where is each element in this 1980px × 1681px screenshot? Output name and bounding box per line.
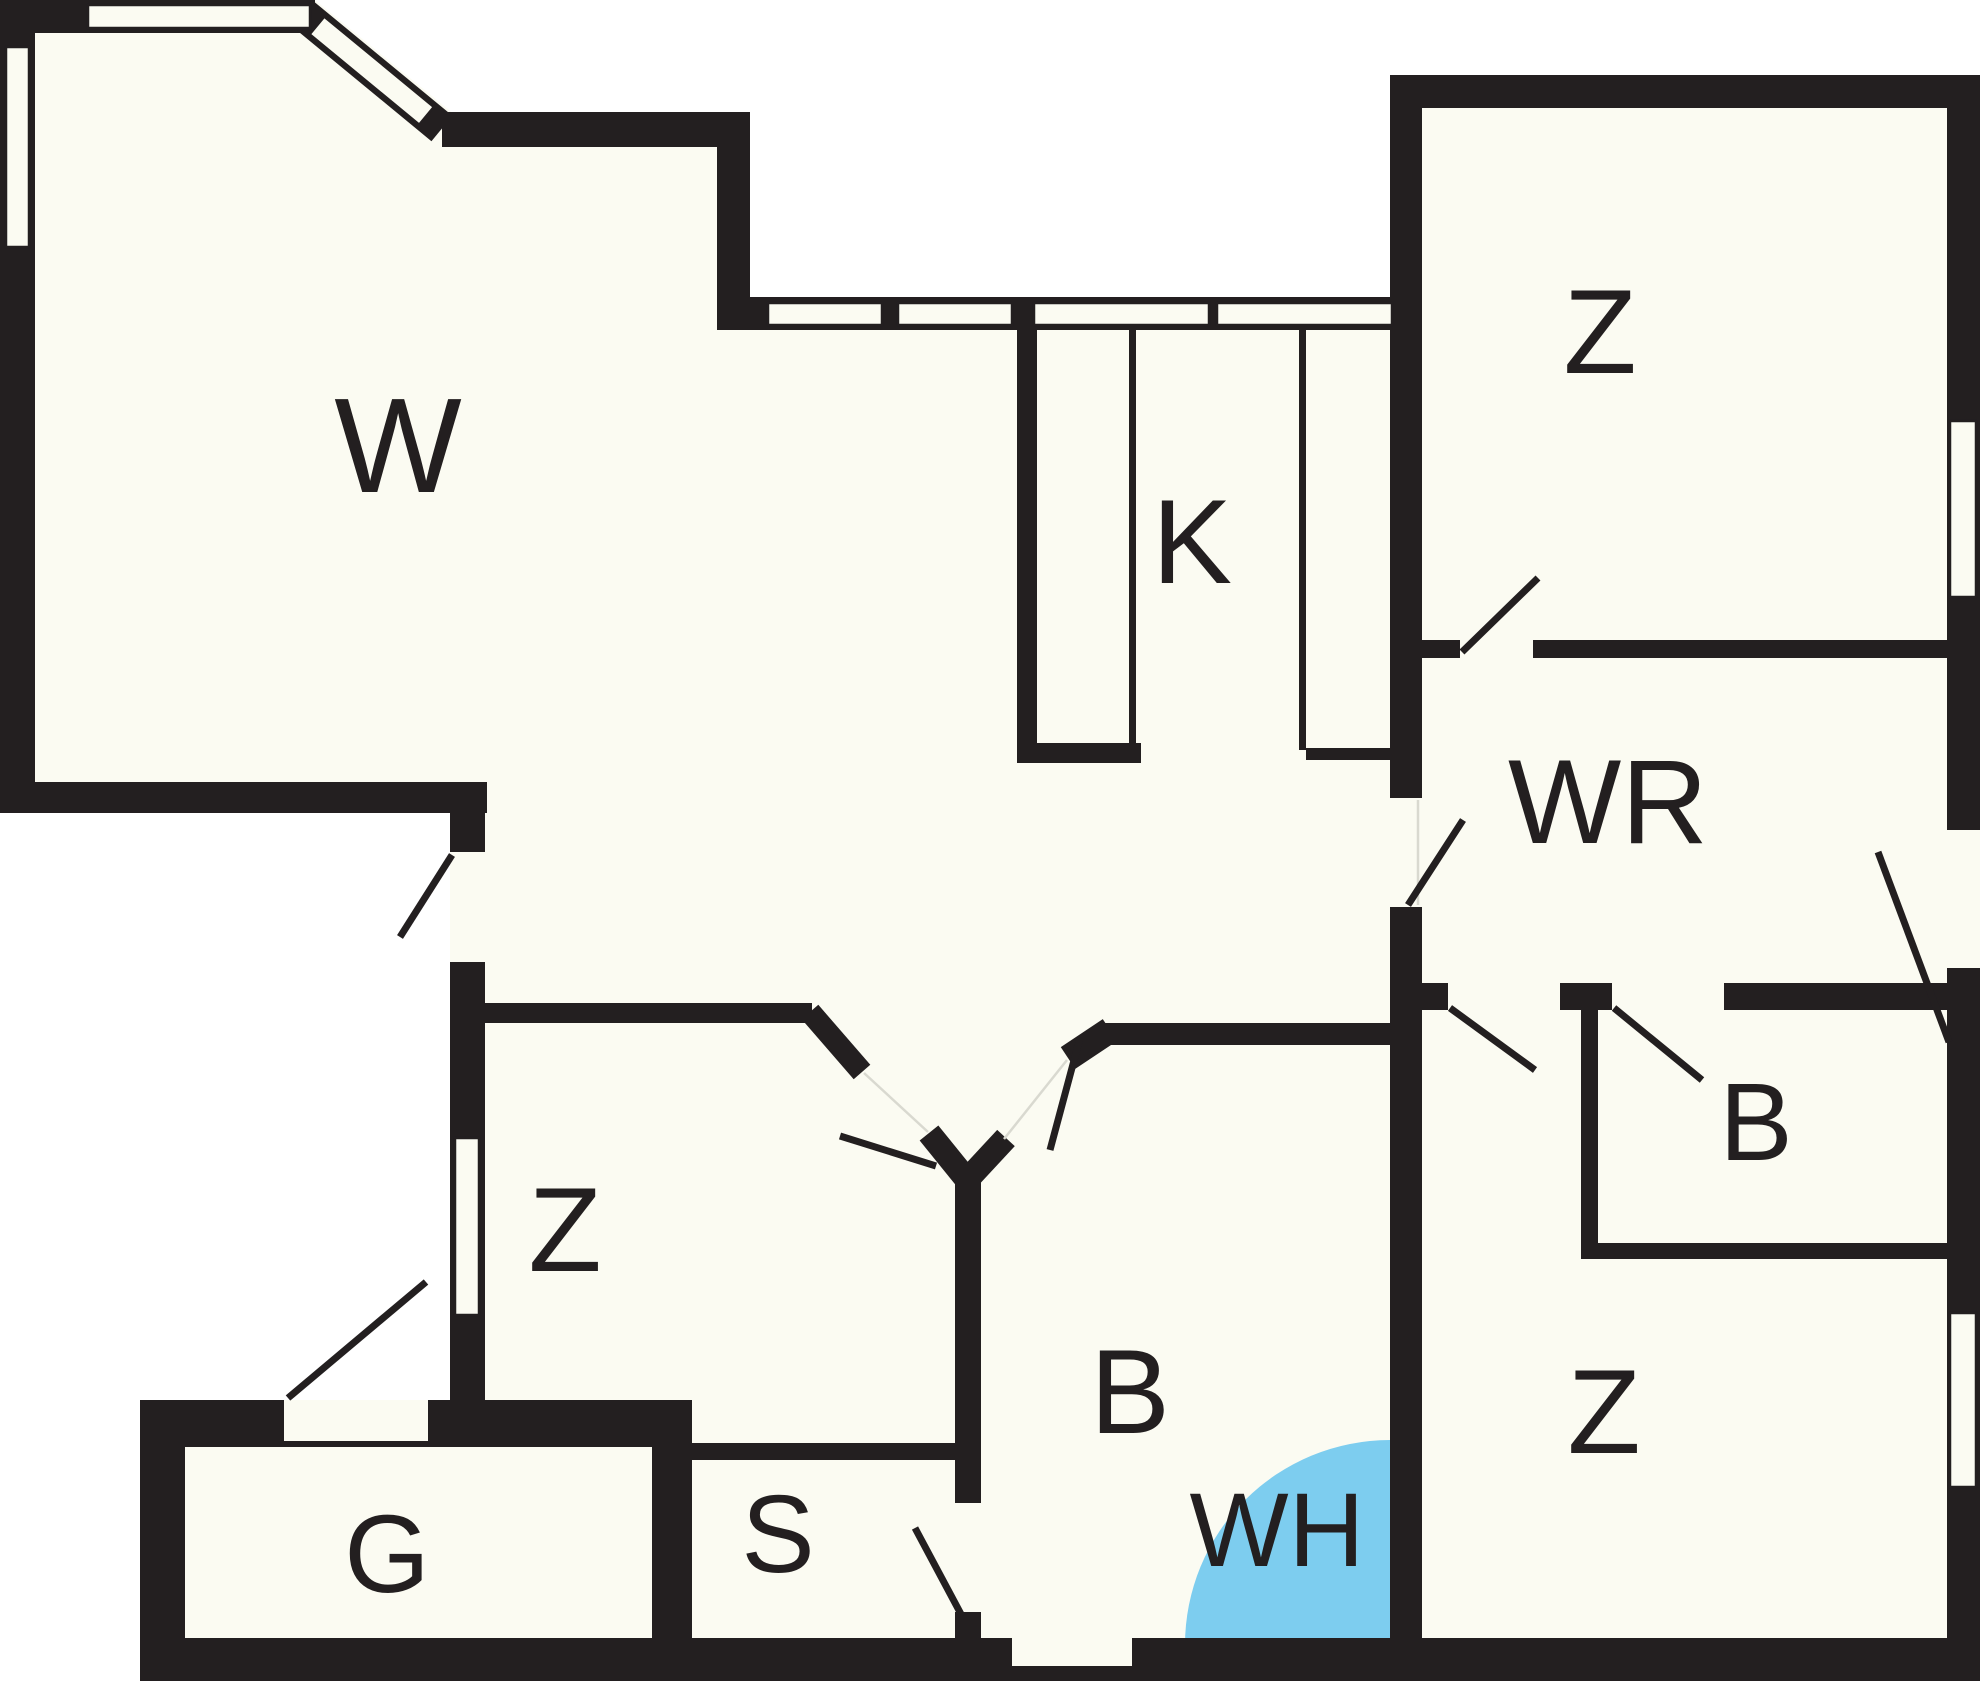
- floor-plan-canvas: W K Z WR B Z Z B WH S G: [0, 0, 1980, 1681]
- room-label-b-small: B: [1719, 1061, 1792, 1184]
- wall-central-lower: [1390, 907, 1422, 1640]
- room-label-wh: WH: [1190, 1472, 1365, 1589]
- wall-top-middle: [442, 112, 750, 147]
- door-swing-g-outside: [288, 1282, 426, 1398]
- window-right-upper: [1950, 421, 1976, 597]
- room-label-w: W: [334, 370, 461, 521]
- room-label-g: G: [344, 1493, 430, 1616]
- window-kitchen-2: [898, 303, 1012, 325]
- wall-z1-wr-stub: [1422, 640, 1460, 658]
- room-label-z-bottom-right: Z: [1567, 1345, 1640, 1479]
- wall-central-upper: [1390, 330, 1422, 798]
- wall-z1-wr: [1533, 640, 1947, 658]
- floor-plan: W K Z WR B Z Z B WH S G: [0, 0, 1980, 1681]
- wall-w-bottom: [0, 782, 487, 813]
- kitchen-counter-line-bottom: [1306, 748, 1392, 760]
- window-kitchen-4: [1217, 303, 1392, 325]
- wall-kitchen-left: [1017, 330, 1037, 763]
- door-opening-g-outside: [284, 1400, 428, 1441]
- room-label-b-bath: B: [1090, 1325, 1170, 1459]
- door-opening-entrance: [1012, 1638, 1132, 1666]
- door-opening-wr-balcony: [1947, 830, 1980, 968]
- wall-z1-left: [1390, 75, 1422, 330]
- wall-z1-top: [1390, 75, 1980, 108]
- wall-wr-bottom-right: [1724, 983, 1947, 1010]
- window-left: [6, 47, 29, 247]
- window-zbl-left: [455, 1138, 479, 1315]
- room-label-wr: WR: [1508, 735, 1708, 869]
- door-opening-hall-outside: [450, 852, 485, 962]
- window-kitchen-1: [768, 303, 882, 325]
- kitchen-counter-line-right: [1299, 330, 1306, 750]
- door-swing-hall-outside: [400, 855, 452, 937]
- wall-bsmall-left: [1581, 1010, 1598, 1258]
- wall-g-s-divider: [652, 1400, 692, 1638]
- wall-bsmall-bottom: [1581, 1243, 1947, 1259]
- wall-wr-bottom-stub: [1422, 983, 1448, 1010]
- wall-s-top: [684, 1443, 960, 1460]
- window-kitchen-3: [1034, 303, 1209, 325]
- kitchen-counter-line-left: [1129, 330, 1136, 743]
- wall-wr-bottom-mid: [1560, 983, 1612, 1010]
- window-top-left: [88, 5, 310, 28]
- wall-zbl-top: [450, 1003, 812, 1023]
- room-label-z-bottom-left: Z: [528, 1163, 601, 1297]
- wall-bbath-top: [1105, 1023, 1390, 1045]
- wall-kitchen-bottom-stub: [1017, 743, 1141, 763]
- room-label-z-top-right: Z: [1563, 265, 1636, 399]
- room-label-k: K: [1152, 475, 1232, 609]
- room-label-s: S: [741, 1473, 814, 1596]
- window-right-lower: [1950, 1313, 1976, 1487]
